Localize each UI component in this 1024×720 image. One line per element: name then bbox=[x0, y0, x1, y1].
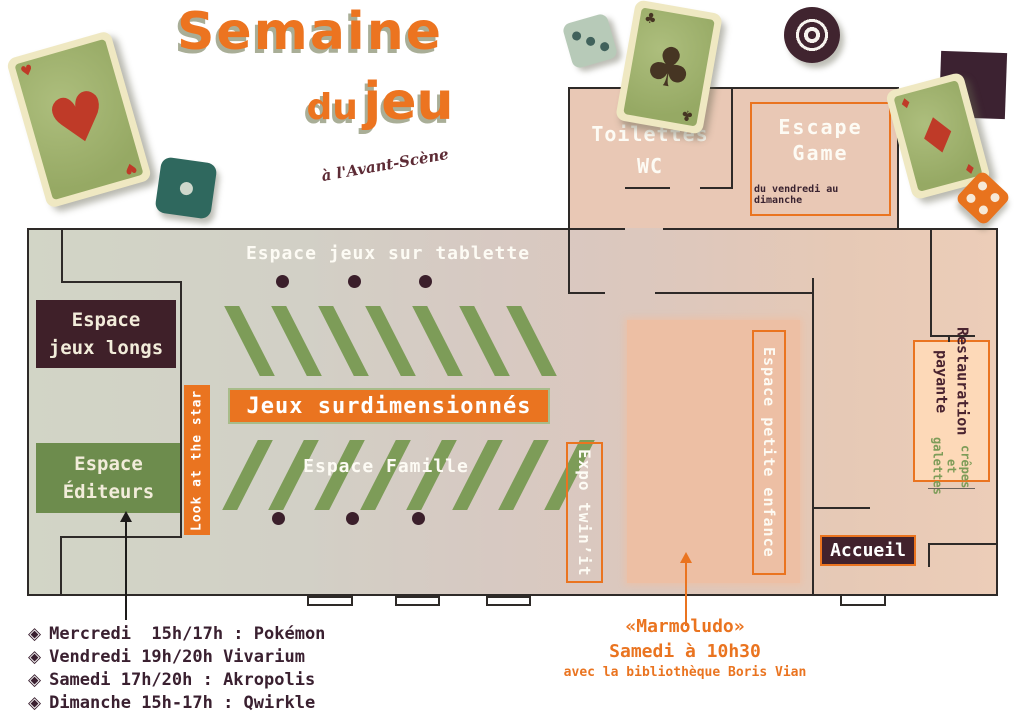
zone-label-editeurs-2: Éditeurs bbox=[36, 478, 181, 507]
event-floor-plan-poster: Espace jeux sur tablette Espace jeux lon… bbox=[0, 0, 1024, 720]
schedule-item: ◈Vendredi 19h/20h Vivarium bbox=[28, 646, 325, 669]
floor-stripe bbox=[506, 306, 557, 376]
marmoludo-partner: avec la bibliothèque Boris Vian bbox=[545, 665, 825, 680]
diamond-icon: ♦ bbox=[962, 158, 978, 177]
restauration-label: Restaurationpayante bbox=[931, 327, 973, 435]
zone-box-petite-enfance: Espace petite enfance bbox=[752, 330, 786, 575]
floor-stripe bbox=[318, 306, 369, 376]
teal-die bbox=[154, 156, 217, 219]
schedule-item: ◈Dimanche 15h-17h : Qwirkle bbox=[28, 692, 325, 715]
table-dot bbox=[272, 512, 285, 525]
marmoludo-arrow-head bbox=[680, 552, 692, 563]
wall bbox=[568, 87, 899, 89]
card-face: ♥ ♥ ♥ bbox=[14, 39, 143, 200]
zone-label-jeux-longs-2: jeux longs bbox=[36, 334, 176, 363]
card-face: ♣ ♣ ♣ bbox=[623, 7, 715, 126]
marmoludo-title: «Marmoludo» bbox=[545, 616, 825, 637]
marmoludo-time: Samedi à 10h30 bbox=[545, 641, 825, 662]
wall bbox=[928, 488, 975, 489]
escape-game-note: du vendredi au dimanche bbox=[754, 184, 887, 206]
floor-stripe bbox=[412, 306, 463, 376]
wall bbox=[930, 335, 975, 337]
card-face: ♦ ♦ ♦ bbox=[893, 80, 982, 192]
table-dot bbox=[276, 275, 289, 288]
zone-box-jeux-longs: Espace jeux longs bbox=[36, 300, 176, 368]
escape-game-label: Escape Game bbox=[778, 114, 862, 166]
club-icon: ♣ bbox=[640, 32, 699, 102]
diamond-icon: ♦ bbox=[909, 102, 967, 170]
schedule-item: ◈Mercredi 15h/17h : Pokémon bbox=[28, 623, 325, 646]
die-dot bbox=[571, 30, 582, 41]
diamond-bullet-icon: ◈ bbox=[28, 647, 41, 667]
wall bbox=[568, 228, 570, 294]
diamond-icon: ♦ bbox=[898, 95, 914, 114]
wall bbox=[996, 228, 998, 596]
wall bbox=[27, 228, 625, 230]
table-dot bbox=[346, 512, 359, 525]
club-icon: ♣ bbox=[680, 106, 695, 124]
schedule-list: ◈Mercredi 15h/17h : Pokémon ◈Vendredi 19… bbox=[28, 623, 325, 715]
zone-label-tablette: Espace jeux sur tablette bbox=[232, 243, 544, 264]
wall bbox=[655, 292, 814, 294]
zone-box-restauration: Restaurationpayante crêpes et galettes bbox=[913, 340, 990, 482]
wall bbox=[812, 278, 814, 596]
table-dot bbox=[348, 275, 361, 288]
zone-box-accueil: Accueil bbox=[820, 535, 916, 566]
zone-box-expo-twinit: Expo twin’it bbox=[566, 442, 603, 583]
schedule-arrow-line bbox=[125, 521, 127, 620]
heart-icon: ♥ bbox=[40, 74, 118, 164]
wall bbox=[930, 228, 932, 337]
wall bbox=[928, 543, 998, 545]
wall bbox=[61, 228, 63, 283]
floor-stripe bbox=[271, 306, 322, 376]
zone-box-escape-game: Escape Game du vendredi au dimanche bbox=[750, 102, 891, 216]
bullseye-target-icon bbox=[784, 7, 840, 63]
schedule-item: ◈Samedi 17h/20h : Akropolis bbox=[28, 669, 325, 692]
ace-of-hearts-card: ♥ ♥ ♥ bbox=[6, 30, 153, 209]
wall bbox=[60, 536, 182, 538]
wall bbox=[61, 281, 181, 283]
diamond-bullet-icon: ◈ bbox=[28, 624, 41, 644]
wall bbox=[27, 228, 29, 596]
wall bbox=[928, 543, 930, 567]
die-dot bbox=[179, 181, 194, 196]
poster-title-line1: Semaine bbox=[150, 2, 470, 62]
diamond-bullet-icon: ◈ bbox=[28, 693, 41, 713]
poster-subtitle: à l'Avant-Scène bbox=[295, 141, 475, 190]
heart-icon: ♥ bbox=[123, 158, 139, 177]
die-dot bbox=[989, 191, 1002, 204]
wall bbox=[948, 335, 950, 342]
stripes-top bbox=[242, 306, 572, 376]
door-marker bbox=[307, 596, 353, 606]
zone-box-jeux-surdimensionnes: Jeux surdimensionnés bbox=[228, 388, 550, 424]
table-dot bbox=[412, 512, 425, 525]
poster-title-line2: du jeu bbox=[255, 72, 505, 132]
die-dot bbox=[965, 192, 978, 205]
wall bbox=[625, 187, 670, 189]
club-icon: ♣ bbox=[643, 10, 658, 28]
wall bbox=[700, 187, 733, 189]
wall bbox=[731, 87, 733, 187]
die-dot bbox=[976, 180, 989, 193]
heart-icon: ♥ bbox=[19, 62, 35, 81]
zone-label-jeux-longs-1: Espace bbox=[36, 306, 176, 335]
zone-label-famille: Espace Famille bbox=[255, 456, 517, 477]
die-dot bbox=[977, 204, 990, 217]
floor-stripe bbox=[459, 306, 510, 376]
wall bbox=[812, 507, 870, 509]
three-dot-die bbox=[562, 13, 619, 70]
door-marker bbox=[395, 596, 440, 606]
restauration-note: crêpes et galettes bbox=[931, 437, 973, 495]
schedule-arrow-head bbox=[120, 511, 132, 522]
zone-box-editeurs: Espace Éditeurs bbox=[36, 443, 181, 513]
die-dot bbox=[585, 36, 596, 47]
wall bbox=[60, 536, 62, 596]
floor-stripe bbox=[365, 306, 416, 376]
table-dot bbox=[419, 275, 432, 288]
diamond-bullet-icon: ◈ bbox=[28, 670, 41, 690]
zone-box-look-at-the-star: Look at the star bbox=[184, 385, 210, 535]
die-dot bbox=[599, 41, 610, 52]
door-marker bbox=[486, 596, 531, 606]
marmoludo-note: «Marmoludo» Samedi à 10h30 avec la bibli… bbox=[545, 616, 825, 680]
door-marker bbox=[840, 594, 886, 606]
wall bbox=[568, 292, 605, 294]
wall bbox=[663, 228, 996, 230]
wall bbox=[180, 281, 182, 538]
zone-label-editeurs-1: Espace bbox=[36, 450, 181, 479]
wall bbox=[568, 87, 570, 230]
